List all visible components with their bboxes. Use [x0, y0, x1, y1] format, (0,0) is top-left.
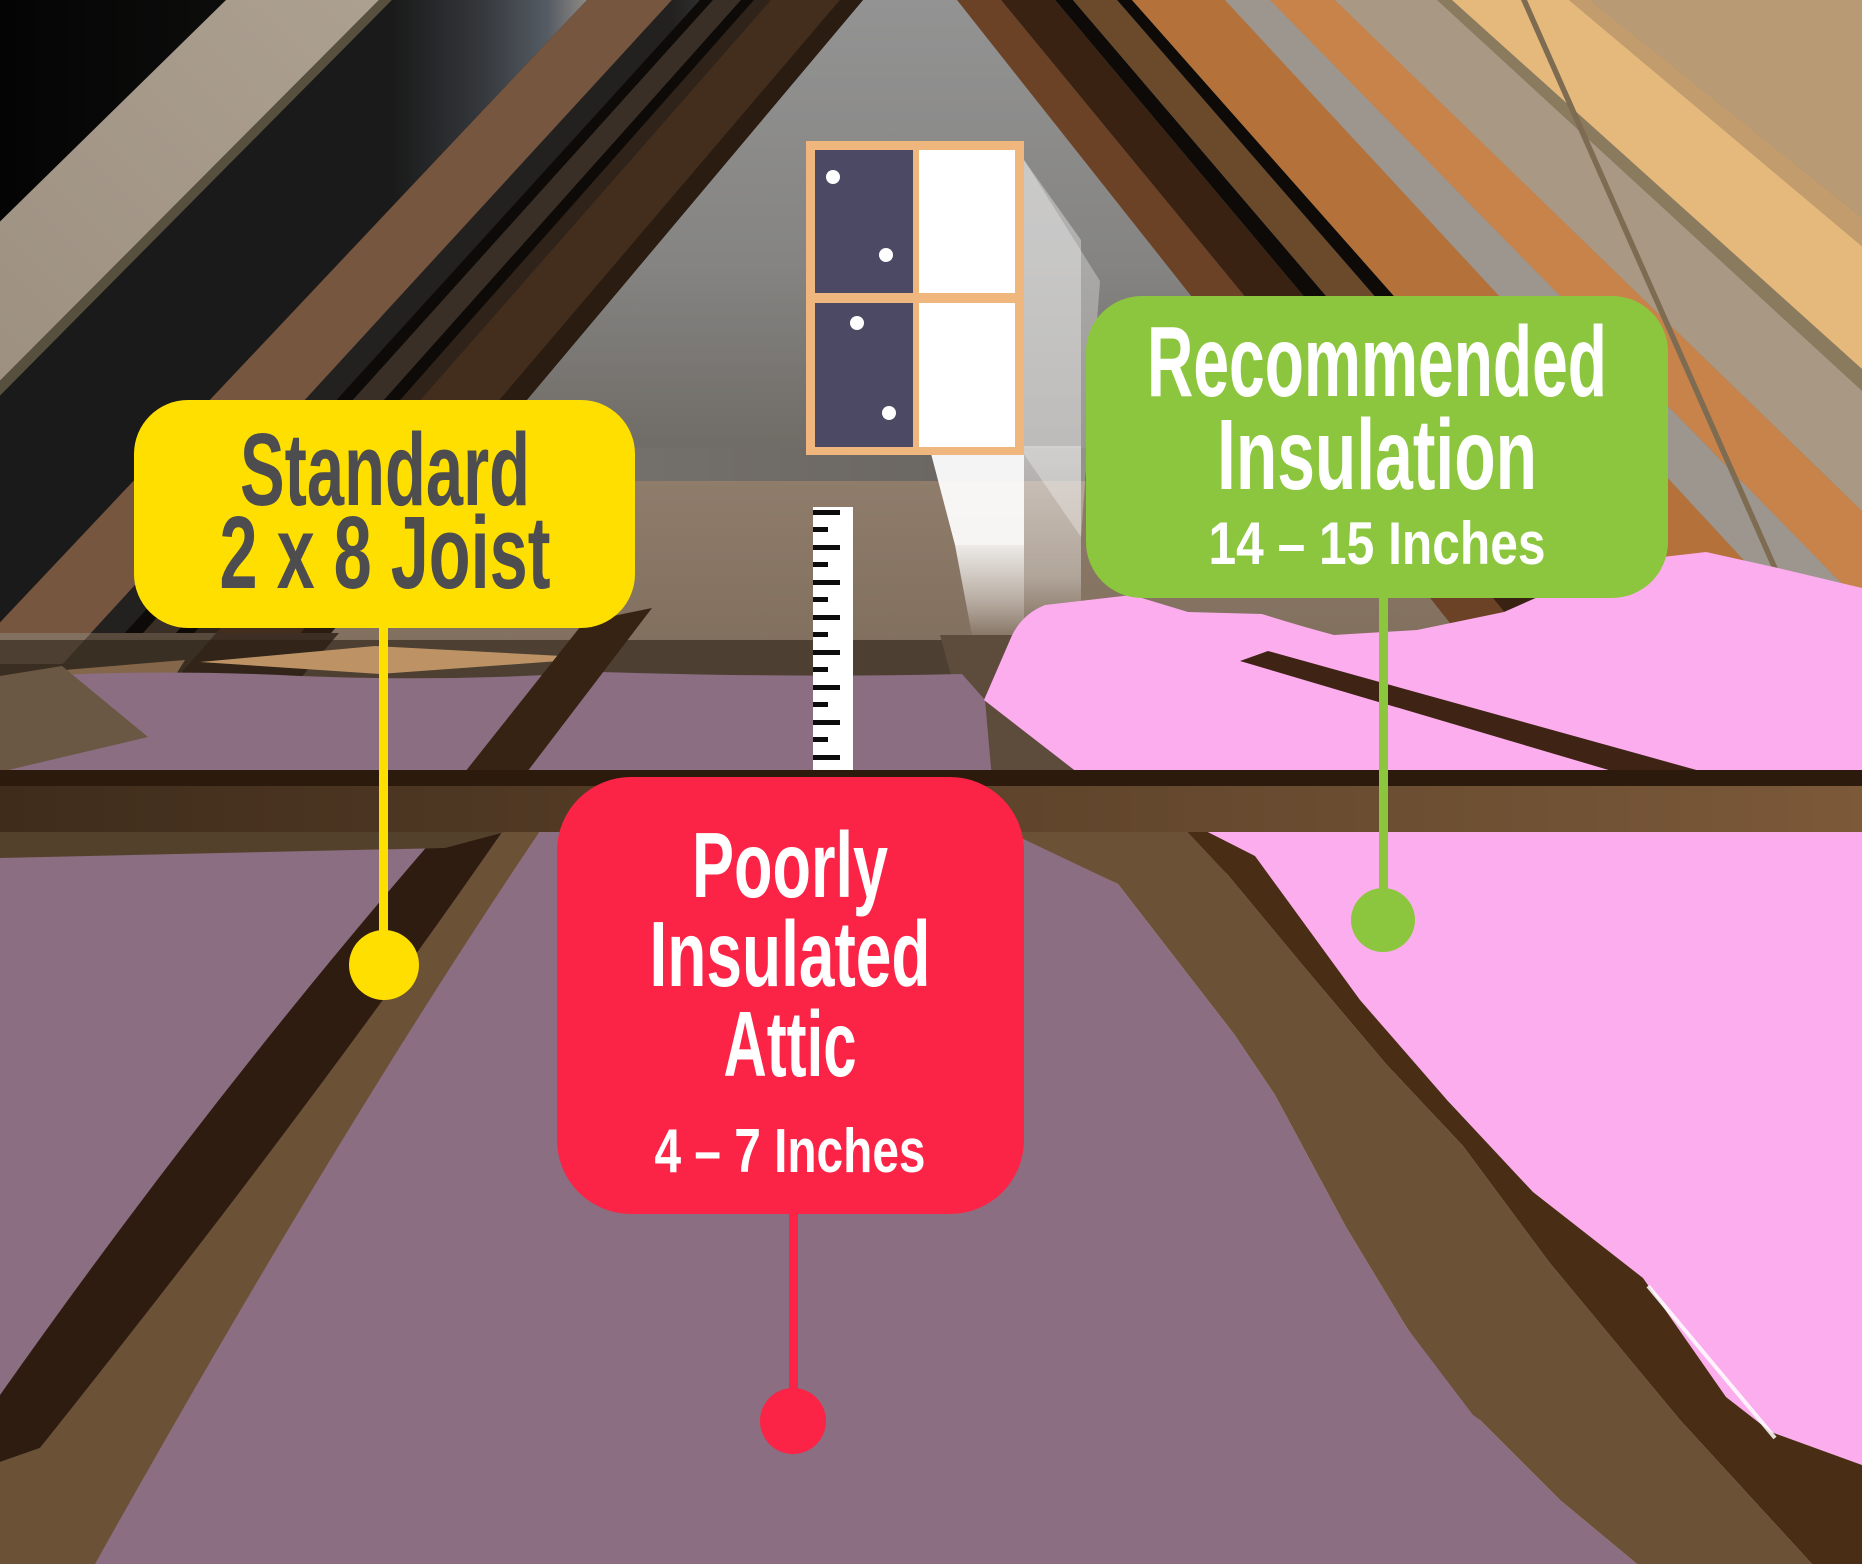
svg-text:Insulation: Insulation [1217, 399, 1537, 511]
svg-text:14 – 15 Inches: 14 – 15 Inches [1209, 510, 1546, 577]
svg-text:2 x 8 Joist: 2 x 8 Joist [220, 495, 551, 610]
svg-text:4 – 7 Inches: 4 – 7 Inches [655, 1117, 926, 1186]
svg-text:Attic: Attic [724, 992, 857, 1096]
svg-text:Insulated: Insulated [650, 902, 931, 1006]
